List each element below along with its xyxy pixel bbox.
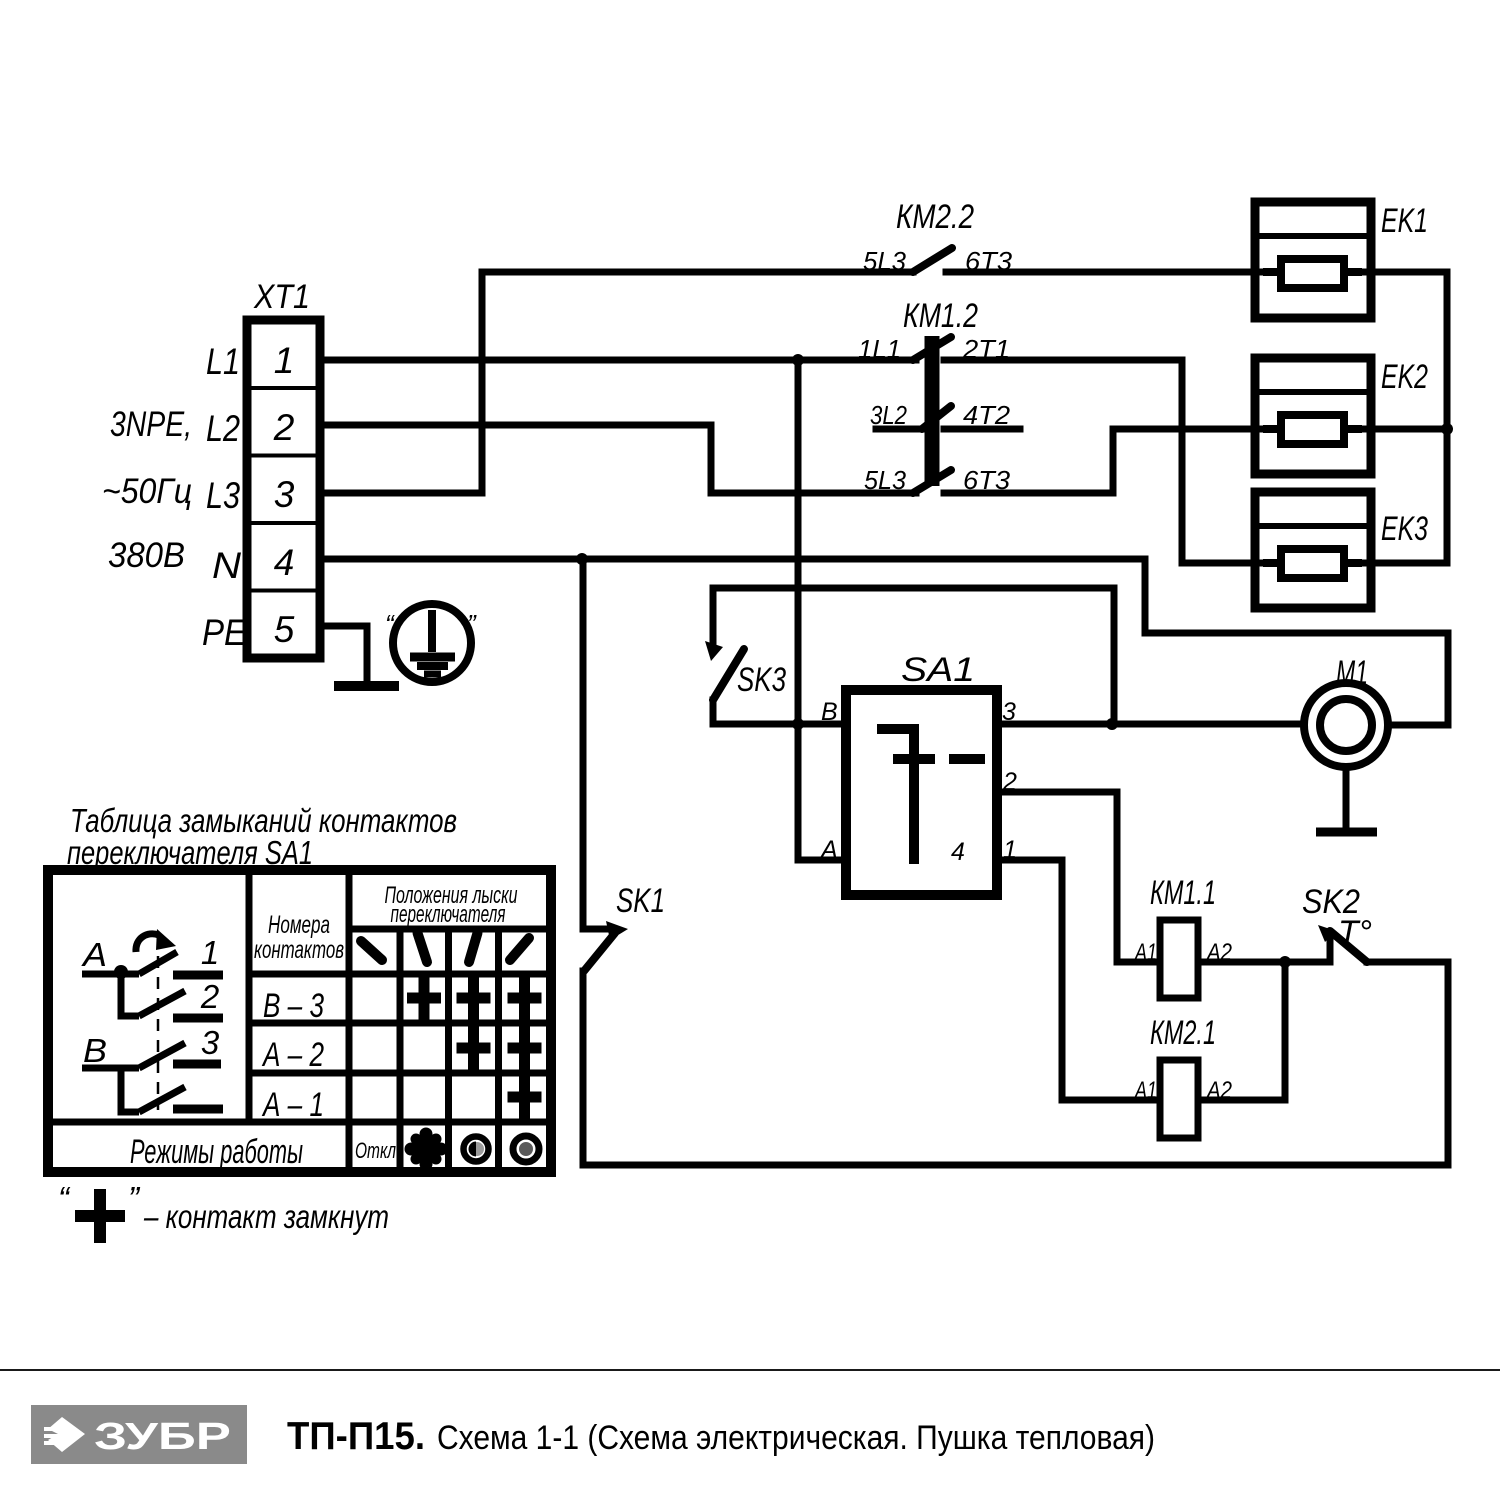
svg-text:L2: L2 — [206, 408, 240, 449]
svg-text:Номера: Номера — [268, 911, 330, 939]
svg-text:Откл: Откл — [355, 1138, 396, 1163]
svg-text:Режимы работы: Режимы работы — [130, 1133, 303, 1171]
svg-text:переключателя: переключателя — [391, 901, 506, 928]
svg-text:2T1: 2T1 — [962, 334, 1010, 364]
svg-text:А – 2: А – 2 — [261, 1036, 324, 1074]
svg-text:2: 2 — [200, 978, 219, 1015]
svg-text:M1: M1 — [1336, 654, 1368, 692]
svg-text:А – 1: А – 1 — [261, 1086, 324, 1124]
svg-text:1L1: 1L1 — [858, 334, 901, 364]
svg-text:А: А — [81, 936, 107, 973]
svg-text:EK3: EK3 — [1381, 510, 1428, 548]
svg-text:переключателя SA1: переключателя SA1 — [67, 834, 313, 871]
svg-text:1: 1 — [274, 340, 295, 381]
svg-text:SK3: SK3 — [737, 661, 786, 699]
svg-text:L3: L3 — [206, 475, 240, 516]
svg-text:2: 2 — [1002, 768, 1017, 796]
svg-text:3: 3 — [274, 474, 295, 515]
svg-text:A: A — [819, 836, 838, 864]
svg-text:A1: A1 — [1134, 939, 1157, 966]
svg-text:“: “ — [385, 609, 395, 639]
svg-text:~50Гц: ~50Гц — [102, 472, 192, 511]
svg-text:EK2: EK2 — [1381, 358, 1428, 396]
svg-text:380В: 380В — [108, 536, 185, 575]
svg-text:”: ” — [467, 609, 477, 639]
svg-text:XT1: XT1 — [253, 278, 310, 316]
svg-text:КМ1.1: КМ1.1 — [1150, 874, 1216, 912]
svg-text:PE: PE — [202, 612, 247, 653]
svg-text:В: В — [83, 1032, 107, 1069]
svg-text:3NPE,: 3NPE, — [110, 405, 192, 444]
svg-text:5: 5 — [274, 609, 295, 650]
svg-text:4T2: 4T2 — [963, 400, 1011, 430]
svg-text:T°: T° — [1338, 914, 1372, 952]
svg-text:КМ1.2: КМ1.2 — [903, 297, 978, 335]
svg-text:контактов: контактов — [254, 936, 344, 964]
svg-text:A2: A2 — [1205, 939, 1232, 966]
svg-text:6T3: 6T3 — [965, 246, 1013, 276]
svg-text:5L3: 5L3 — [863, 246, 907, 276]
svg-text:4: 4 — [274, 542, 295, 583]
svg-text:ЗУБР: ЗУБР — [94, 1416, 231, 1458]
svg-text:A1: A1 — [1134, 1077, 1157, 1104]
svg-text:EK1: EK1 — [1381, 202, 1428, 240]
svg-text:2: 2 — [273, 407, 295, 448]
svg-text:A2: A2 — [1205, 1077, 1232, 1104]
svg-text:Схема 1-1 (Схема электрическая: Схема 1-1 (Схема электрическая. Пушка те… — [437, 1419, 1155, 1457]
svg-text:B: B — [821, 698, 838, 726]
svg-text:3L2: 3L2 — [870, 400, 907, 430]
svg-text:6T3: 6T3 — [963, 465, 1011, 495]
svg-text:SA1: SA1 — [901, 651, 975, 689]
svg-text:1: 1 — [201, 934, 219, 971]
svg-text:3: 3 — [201, 1024, 220, 1061]
svg-text:КМ2.2: КМ2.2 — [896, 198, 974, 236]
svg-text:КМ2.1: КМ2.1 — [1150, 1014, 1216, 1052]
svg-text:N: N — [212, 545, 241, 586]
svg-text:SK1: SK1 — [616, 882, 665, 920]
svg-text:L1: L1 — [206, 341, 240, 382]
svg-text:ТП-П15.: ТП-П15. — [287, 1415, 425, 1458]
svg-text:3: 3 — [1002, 698, 1016, 726]
svg-text:В – 3: В – 3 — [263, 987, 324, 1025]
svg-text:5L3: 5L3 — [864, 465, 907, 495]
svg-text:1: 1 — [1003, 836, 1017, 864]
svg-text:– контакт замкнут: – контакт замкнут — [143, 1198, 389, 1235]
svg-text:4: 4 — [951, 838, 965, 866]
